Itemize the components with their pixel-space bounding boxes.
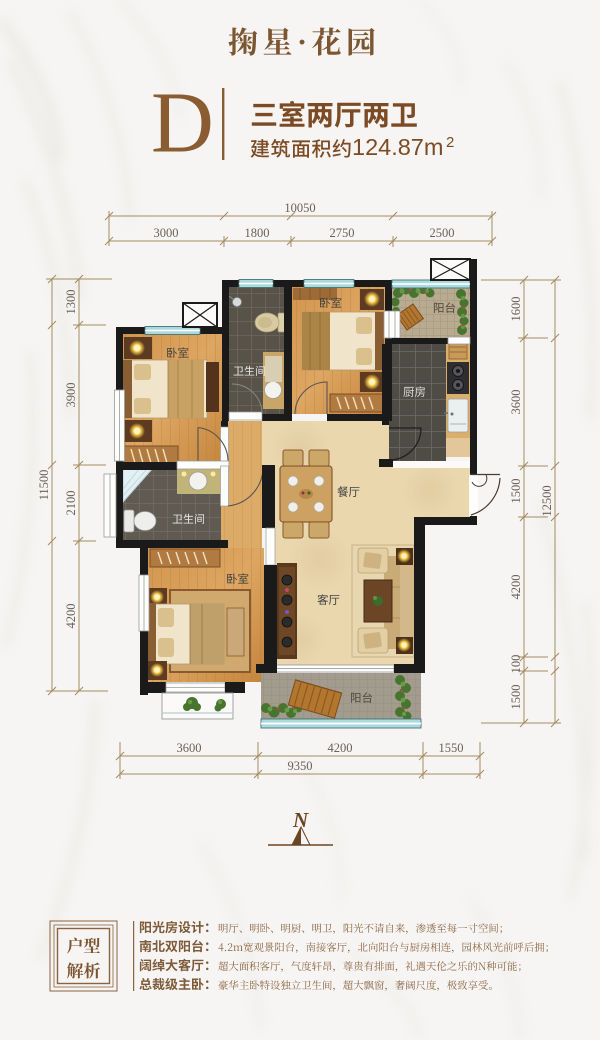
svg-text:1300: 1300	[64, 290, 78, 315]
svg-text:11500: 11500	[37, 470, 51, 501]
svg-text:12500: 12500	[540, 485, 554, 516]
svg-text:4200: 4200	[328, 741, 353, 755]
svg-text:1500: 1500	[509, 685, 523, 710]
svg-text:3900: 3900	[64, 383, 78, 408]
svg-text:3600: 3600	[177, 741, 202, 755]
svg-text:1600: 1600	[509, 297, 523, 322]
svg-text:2: 2	[446, 134, 454, 151]
svg-text:10050: 10050	[284, 201, 315, 215]
svg-text:3000: 3000	[154, 226, 179, 240]
svg-text:2500: 2500	[430, 226, 455, 240]
svg-text:100: 100	[509, 655, 523, 674]
svg-text:2750: 2750	[330, 226, 355, 240]
svg-text:1800: 1800	[245, 226, 270, 240]
svg-text:2100: 2100	[64, 491, 78, 516]
svg-text:124.87m: 124.87m	[352, 134, 443, 160]
svg-text:4200: 4200	[509, 575, 523, 600]
svg-text:1500: 1500	[509, 479, 523, 504]
svg-text:4200: 4200	[64, 604, 78, 629]
svg-text:D: D	[151, 74, 214, 171]
svg-text:9350: 9350	[288, 759, 313, 773]
svg-text:1550: 1550	[439, 741, 464, 755]
svg-text:3600: 3600	[509, 390, 523, 415]
